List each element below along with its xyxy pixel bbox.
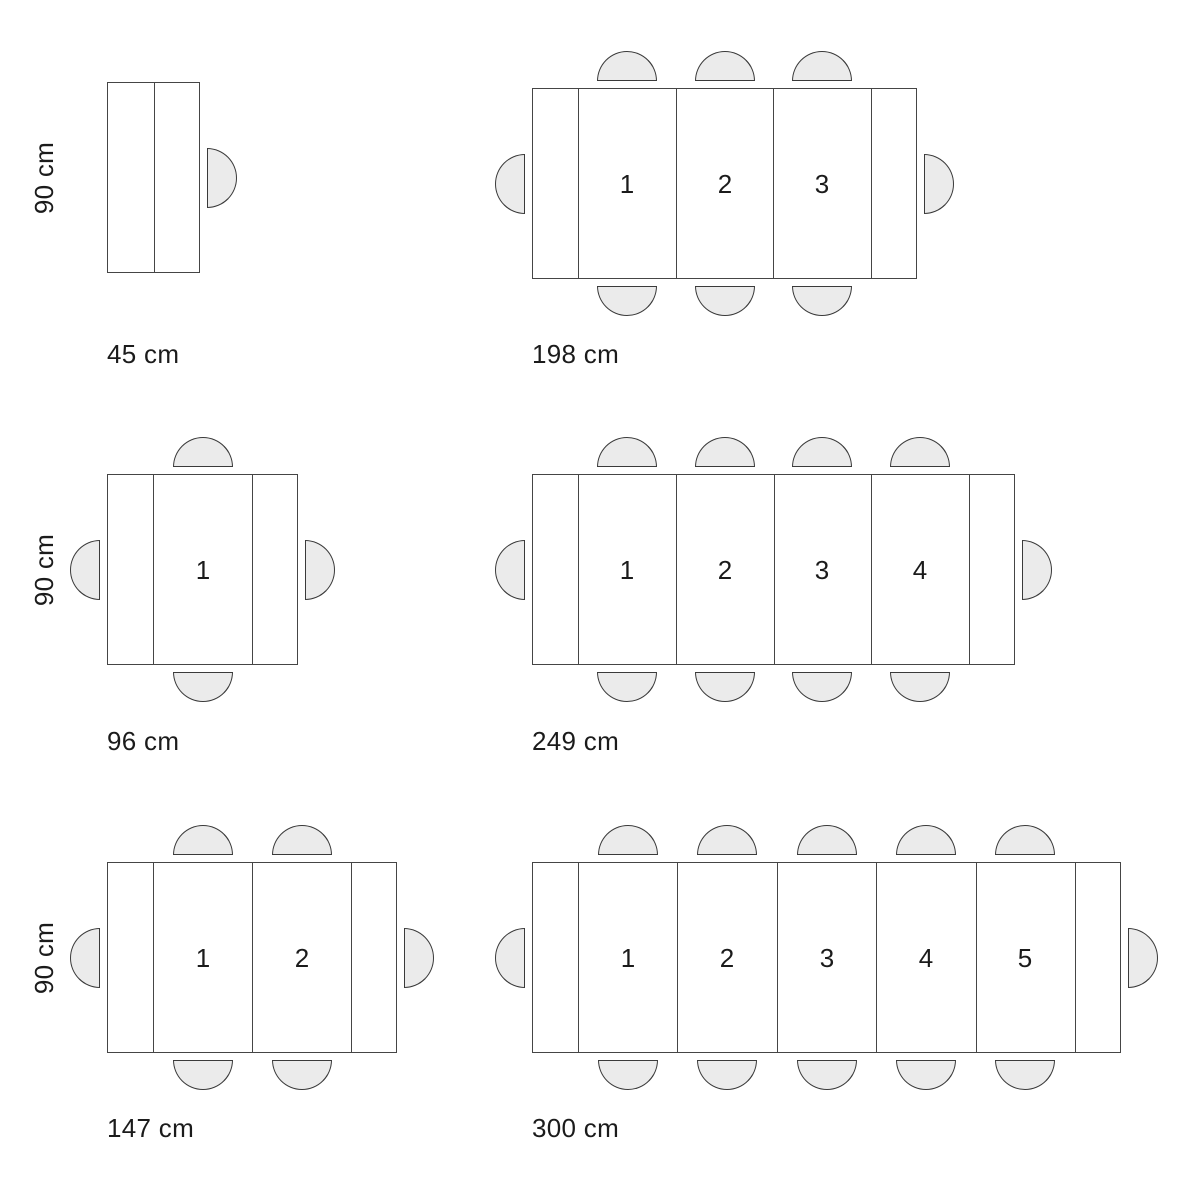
chair-icon <box>695 672 755 702</box>
leaf-divider <box>976 863 977 1052</box>
chair-icon <box>1022 540 1052 600</box>
width-dimension-label: 300 cm <box>532 1115 619 1141</box>
width-dimension-label: 147 cm <box>107 1115 194 1141</box>
leaf-number: 4 <box>896 942 956 974</box>
width-dimension-label: 96 cm <box>107 728 179 754</box>
leaf-divider <box>676 475 677 664</box>
chair-icon <box>305 540 335 600</box>
chair-icon <box>890 437 950 467</box>
chair-icon <box>890 672 950 702</box>
leaf-divider <box>351 863 352 1052</box>
chair-icon <box>173 1060 233 1090</box>
leaf-divider <box>578 89 579 278</box>
chair-icon <box>995 1060 1055 1090</box>
chair-icon <box>272 1060 332 1090</box>
chair-icon <box>896 1060 956 1090</box>
chair-icon <box>597 437 657 467</box>
leaf-number: 4 <box>890 554 950 586</box>
chair-icon <box>598 1060 658 1090</box>
leaf-number: 1 <box>597 168 657 200</box>
leaf-number: 2 <box>695 554 755 586</box>
leaf-number: 3 <box>797 942 857 974</box>
chair-icon <box>1128 928 1158 988</box>
chair-icon <box>173 672 233 702</box>
chair-icon <box>404 928 434 988</box>
chair-icon <box>207 148 237 208</box>
leaf-number: 3 <box>792 554 852 586</box>
chair-icon <box>792 51 852 81</box>
width-dimension-label: 45 cm <box>107 341 179 367</box>
leaf-divider <box>774 475 775 664</box>
leaf-number: 2 <box>697 942 757 974</box>
leaf-divider <box>969 475 970 664</box>
chair-icon <box>797 1060 857 1090</box>
chair-icon <box>896 825 956 855</box>
leaf-divider <box>677 863 678 1052</box>
leaf-divider <box>578 863 579 1052</box>
leaf-divider <box>252 475 253 664</box>
depth-dimension-label: 90 cm <box>30 898 58 1018</box>
leaf-divider <box>871 89 872 278</box>
chair-icon <box>792 672 852 702</box>
chair-icon <box>792 437 852 467</box>
leaf-divider <box>1075 863 1076 1052</box>
leaf-divider <box>777 863 778 1052</box>
chair-icon <box>70 540 100 600</box>
leaf-number: 3 <box>792 168 852 200</box>
leaf-divider <box>252 863 253 1052</box>
chair-icon <box>173 437 233 467</box>
table-size-diagram: 45 cm90 cm123198 cm196 cm90 cm1234249 cm… <box>0 0 1181 1181</box>
width-dimension-label: 198 cm <box>532 341 619 367</box>
chair-icon <box>70 928 100 988</box>
chair-icon <box>697 825 757 855</box>
leaf-number: 1 <box>598 942 658 974</box>
leaf-divider <box>153 863 154 1052</box>
leaf-divider <box>773 89 774 278</box>
chair-icon <box>697 1060 757 1090</box>
leaf-divider <box>871 475 872 664</box>
chair-icon <box>695 437 755 467</box>
chair-icon <box>695 51 755 81</box>
chair-icon <box>173 825 233 855</box>
depth-dimension-label: 90 cm <box>30 510 58 630</box>
chair-icon <box>597 286 657 316</box>
leaf-divider <box>876 863 877 1052</box>
chair-icon <box>597 672 657 702</box>
chair-icon <box>597 51 657 81</box>
chair-icon <box>792 286 852 316</box>
chair-icon <box>272 825 332 855</box>
chair-icon <box>495 928 525 988</box>
depth-dimension-label: 90 cm <box>30 118 58 238</box>
leaf-number: 5 <box>995 942 1055 974</box>
chair-icon <box>495 154 525 214</box>
leaf-number: 1 <box>173 942 233 974</box>
chair-icon <box>924 154 954 214</box>
chair-icon <box>495 540 525 600</box>
leaf-number: 1 <box>173 554 233 586</box>
chair-icon <box>995 825 1055 855</box>
leaf-divider <box>154 83 155 272</box>
leaf-divider <box>676 89 677 278</box>
leaf-number: 2 <box>272 942 332 974</box>
leaf-divider <box>578 475 579 664</box>
leaf-number: 2 <box>695 168 755 200</box>
leaf-divider <box>153 475 154 664</box>
chair-icon <box>598 825 658 855</box>
chair-icon <box>797 825 857 855</box>
width-dimension-label: 249 cm <box>532 728 619 754</box>
leaf-number: 1 <box>597 554 657 586</box>
chair-icon <box>695 286 755 316</box>
